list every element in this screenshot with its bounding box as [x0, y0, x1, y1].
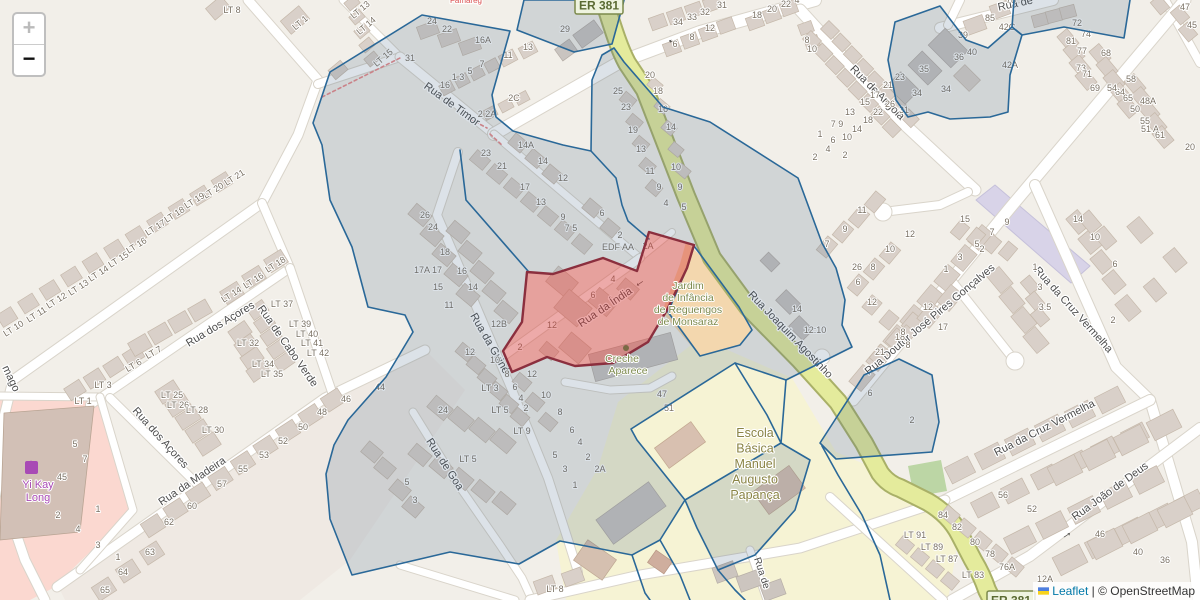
svg-text:2C: 2C: [508, 93, 520, 103]
svg-text:10: 10: [842, 132, 852, 142]
svg-text:12: 12: [705, 23, 715, 33]
svg-text:46: 46: [341, 394, 351, 404]
svg-text:71: 71: [1082, 69, 1092, 79]
svg-text:13: 13: [523, 42, 533, 52]
svg-text:20: 20: [767, 4, 777, 14]
svg-text:60: 60: [187, 501, 197, 511]
svg-text:63: 63: [145, 547, 155, 557]
svg-text:14: 14: [1073, 214, 1083, 224]
svg-text:LT 30: LT 30: [202, 425, 224, 435]
svg-text:52: 52: [1027, 504, 1037, 514]
svg-text:3.5: 3.5: [1039, 302, 1052, 312]
svg-text:57: 57: [217, 479, 227, 489]
svg-text:LT 42: LT 42: [307, 348, 329, 358]
svg-text:31: 31: [717, 0, 727, 10]
svg-text:85: 85: [985, 13, 995, 23]
svg-text:26: 26: [852, 262, 862, 272]
svg-text:Papança: Papança: [730, 488, 779, 502]
svg-text:8: 8: [900, 327, 905, 337]
svg-text:7: 7: [989, 227, 994, 237]
svg-text:Jardim: Jardim: [672, 280, 704, 292]
svg-text:LT 28: LT 28: [186, 405, 208, 415]
svg-text:64: 64: [118, 567, 128, 577]
svg-text:14: 14: [852, 124, 862, 134]
svg-text:Augusto: Augusto: [732, 473, 778, 487]
svg-text:2: 2: [842, 150, 847, 160]
svg-text:11: 11: [857, 205, 866, 215]
svg-text:LT 25: LT 25: [161, 390, 183, 400]
svg-text:50: 50: [298, 422, 308, 432]
svg-text:ER 381: ER 381: [991, 594, 1031, 600]
svg-text:LT 39: LT 39: [289, 319, 311, 329]
svg-text:65: 65: [1123, 93, 1133, 103]
svg-text:LT 91: LT 91: [904, 530, 926, 540]
svg-text:LT 8: LT 8: [546, 584, 563, 594]
svg-text:32: 32: [700, 7, 710, 17]
svg-text:Manuel: Manuel: [735, 457, 776, 471]
svg-text:2: 2: [812, 152, 817, 162]
svg-text:33: 33: [687, 12, 697, 22]
svg-text:de Reguengos: de Reguengos: [654, 304, 722, 316]
svg-text:1: 1: [95, 504, 100, 514]
svg-text:81: 81: [1066, 36, 1076, 46]
svg-text:2: 2: [1110, 315, 1115, 325]
svg-text:47: 47: [1180, 2, 1190, 12]
svg-text:1: 1: [943, 264, 948, 274]
svg-text:12: 12: [923, 302, 933, 312]
svg-text:Básica: Básica: [736, 442, 774, 456]
svg-text:7 9: 7 9: [831, 119, 844, 129]
svg-text:LT 8: LT 8: [223, 5, 240, 15]
svg-text:68: 68: [1101, 48, 1111, 58]
svg-text:LT 34: LT 34: [252, 359, 274, 369]
svg-text:26: 26: [885, 99, 895, 109]
svg-text:4: 4: [75, 524, 80, 534]
svg-text:6: 6: [672, 39, 677, 49]
svg-text:9: 9: [1004, 217, 1009, 227]
svg-text:13: 13: [845, 107, 855, 117]
svg-text:15: 15: [860, 97, 870, 107]
svg-text:10: 10: [885, 244, 895, 254]
svg-text:50: 50: [1130, 104, 1140, 114]
svg-text:20: 20: [1185, 142, 1195, 152]
svg-text:3: 3: [95, 540, 100, 550]
svg-text:45: 45: [1187, 20, 1197, 30]
svg-text:22: 22: [781, 0, 791, 9]
svg-text:5: 5: [72, 439, 77, 449]
svg-text:Yi Kay: Yi Kay: [22, 479, 54, 491]
svg-text:LT 35: LT 35: [261, 369, 283, 379]
svg-text:1: 1: [817, 129, 822, 139]
svg-text:17: 17: [870, 90, 880, 100]
svg-text:20: 20: [645, 70, 655, 80]
svg-text:LT 89: LT 89: [921, 542, 943, 552]
svg-text:6: 6: [855, 277, 860, 287]
svg-text:de Monsaraz: de Monsaraz: [658, 316, 719, 328]
svg-text:48A: 48A: [1140, 96, 1156, 106]
svg-text:54: 54: [1107, 83, 1117, 93]
svg-text:17: 17: [938, 322, 948, 332]
svg-text:18: 18: [653, 86, 663, 96]
svg-text:2: 2: [979, 244, 984, 254]
svg-text:1: 1: [115, 552, 120, 562]
svg-text:55: 55: [238, 464, 248, 474]
svg-text:48: 48: [317, 407, 327, 417]
svg-text:LT 37: LT 37: [271, 299, 293, 309]
svg-text:84: 84: [938, 510, 948, 520]
svg-text:45: 45: [57, 472, 67, 482]
svg-text:76A: 76A: [999, 562, 1015, 572]
svg-text:40: 40: [1133, 547, 1143, 557]
svg-text:8: 8: [905, 340, 910, 350]
svg-text:18: 18: [863, 115, 873, 125]
svg-text:7: 7: [82, 454, 87, 464]
svg-text:62: 62: [164, 517, 174, 527]
svg-text:LT 1: LT 1: [74, 396, 91, 406]
svg-text:80: 80: [970, 537, 980, 547]
svg-text:8: 8: [870, 262, 875, 272]
svg-text:Aparece: Aparece: [608, 365, 647, 377]
svg-text:de Infância: de Infância: [662, 292, 714, 304]
svg-text:61: 61: [1155, 130, 1165, 140]
svg-text:10: 10: [807, 44, 817, 54]
svg-text:12: 12: [867, 297, 877, 307]
svg-text:56: 56: [998, 490, 1008, 500]
svg-text:ER 381: ER 381: [579, 0, 619, 13]
svg-text:22: 22: [873, 107, 883, 117]
svg-text:Famareg: Famareg: [450, 0, 482, 5]
svg-text:2: 2: [55, 510, 60, 520]
svg-text:69: 69: [1090, 83, 1100, 93]
svg-text:52: 52: [278, 436, 288, 446]
svg-text:65: 65: [100, 585, 110, 595]
svg-text:4: 4: [794, 0, 799, 5]
svg-text:82: 82: [952, 522, 962, 532]
svg-text:6: 6: [830, 135, 835, 145]
svg-text:LT 83: LT 83: [962, 570, 984, 580]
svg-text:18: 18: [752, 10, 762, 20]
svg-text:77: 77: [1077, 46, 1087, 56]
svg-text:3: 3: [957, 252, 962, 262]
svg-text:Long: Long: [26, 492, 50, 504]
svg-text:21: 21: [875, 347, 885, 357]
svg-text:34: 34: [673, 17, 683, 27]
svg-text:5: 5: [974, 239, 979, 249]
svg-text:10: 10: [1090, 232, 1100, 242]
svg-text:1: 1: [1032, 262, 1037, 272]
svg-text:53: 53: [259, 450, 269, 460]
svg-text:12: 12: [905, 229, 915, 239]
svg-text:15: 15: [960, 214, 970, 224]
svg-text:Creche: Creche: [605, 353, 639, 365]
svg-text:46: 46: [1095, 529, 1105, 539]
svg-text:LT 87: LT 87: [936, 554, 958, 564]
svg-text:LT 32: LT 32: [237, 338, 259, 348]
svg-text:58: 58: [1126, 74, 1136, 84]
svg-text:8: 8: [689, 32, 694, 42]
svg-text:6: 6: [1112, 259, 1117, 269]
svg-text:9: 9: [842, 224, 847, 234]
svg-text:36: 36: [1160, 555, 1170, 565]
svg-text:Escola: Escola: [736, 426, 774, 440]
svg-text:LT 3: LT 3: [94, 380, 111, 390]
svg-text:LT 41: LT 41: [301, 338, 323, 348]
svg-text:78: 78: [985, 549, 995, 559]
svg-text:4: 4: [825, 144, 830, 154]
svg-text:3: 3: [1037, 282, 1042, 292]
